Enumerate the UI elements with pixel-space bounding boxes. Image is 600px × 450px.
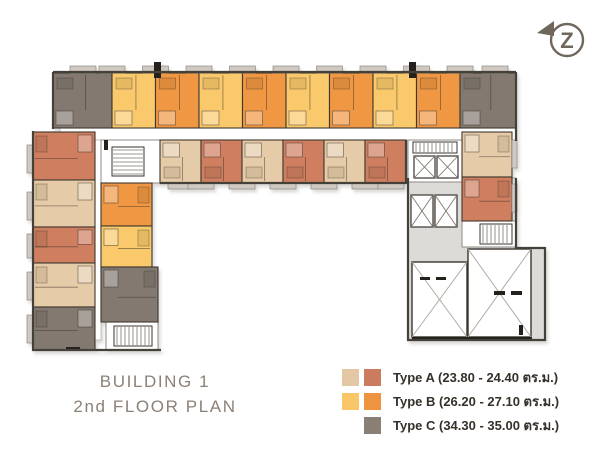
unit-bathroom	[78, 266, 92, 283]
unit-bathroom	[368, 143, 384, 157]
legend-label: Type B (26.20 - 27.10 ตร.ม.)	[393, 391, 559, 412]
unit-bed	[290, 78, 306, 89]
wall-mark	[104, 140, 108, 150]
wall-mark	[511, 291, 522, 295]
legend-swatch	[364, 393, 381, 410]
unit-bathroom	[104, 229, 118, 245]
unit-bathroom	[463, 111, 480, 125]
unit-bed	[247, 78, 263, 89]
unit-bathroom	[420, 111, 437, 125]
unit-bathroom	[202, 111, 219, 125]
wall-mark	[409, 62, 416, 78]
unit-bed	[138, 187, 149, 203]
unit-bathroom	[56, 111, 73, 125]
unit-bed	[369, 167, 385, 178]
unit-bed	[203, 78, 219, 89]
unit-bathroom	[78, 310, 92, 327]
unit-bathroom	[104, 186, 118, 203]
unit-bed	[36, 267, 47, 283]
wall-mark	[494, 291, 505, 295]
unit-bed	[287, 167, 303, 178]
unit-bathroom	[286, 143, 302, 157]
unit-bed	[377, 78, 393, 89]
unit-bed	[164, 167, 180, 178]
staircase	[112, 147, 144, 176]
wall-mark	[519, 325, 523, 335]
legend-row: Type B (26.20 - 27.10 ตร.ม.)	[342, 393, 559, 410]
legend-label: Type C (34.30 - 35.00 ตร.ม.)	[393, 415, 559, 436]
unit-bathroom	[465, 180, 479, 197]
unit-bed	[421, 78, 437, 89]
unit-bed	[144, 271, 155, 287]
floor-name: 2nd FLOOR PLAN	[55, 397, 255, 417]
unit-bathroom	[104, 270, 118, 287]
plan-title: BUILDING 1 2nd FLOOR PLAN	[55, 372, 255, 417]
unit-bed	[57, 78, 73, 89]
corridor	[95, 140, 101, 340]
unit-bed	[328, 167, 344, 178]
unit-bed	[36, 136, 47, 152]
legend-swatch	[342, 393, 359, 410]
legend-row: Type A (23.80 - 24.40 ตร.ม.)	[342, 369, 559, 386]
north-badge: Z	[534, 10, 588, 69]
unit-bathroom	[245, 143, 261, 157]
legend-label: Type A (23.80 - 24.40 ตร.ม.)	[393, 367, 558, 388]
unit-bed	[116, 78, 132, 89]
unit-bed	[36, 184, 47, 200]
legend-swatch	[364, 417, 381, 434]
unit-bathroom	[246, 111, 263, 125]
unit-bed	[160, 78, 176, 89]
unit-bed	[36, 311, 47, 327]
unit-type-legend: Type A (23.80 - 24.40 ตร.ม.)Type B (26.2…	[342, 369, 559, 441]
unit-bed	[246, 167, 262, 178]
unit-bathroom	[78, 230, 92, 244]
unit-bathroom	[465, 135, 479, 152]
unit-bathroom	[376, 111, 393, 125]
legend-row: Type C (34.30 - 35.00 ตร.ม.)	[342, 417, 559, 434]
unit-bathroom	[289, 111, 306, 125]
unit-bathroom	[327, 143, 343, 157]
wall-mark	[436, 277, 446, 280]
wall-mark	[154, 62, 161, 78]
unit-bed	[138, 230, 149, 246]
unit-bathroom	[159, 111, 176, 125]
unit-bed	[464, 78, 480, 89]
compass-letter: Z	[560, 28, 573, 53]
unit-bed	[498, 181, 509, 197]
unit-bathroom	[115, 111, 132, 125]
unit-bathroom	[204, 143, 220, 157]
legend-swatch	[342, 369, 359, 386]
unit-bathroom	[163, 143, 179, 157]
unit-bathroom	[333, 111, 350, 125]
compass-icon: Z	[534, 10, 588, 64]
unit-bed	[36, 231, 47, 247]
corridor	[60, 128, 516, 140]
unit-bed	[334, 78, 350, 89]
unit-bed	[498, 136, 509, 152]
unit-bed	[205, 167, 221, 178]
unit-bathroom	[78, 183, 92, 200]
building-name: BUILDING 1	[55, 372, 255, 392]
wall-mark	[420, 277, 430, 280]
balcony-tab	[512, 140, 517, 168]
unit-bathroom	[78, 135, 92, 152]
legend-swatch	[364, 369, 381, 386]
